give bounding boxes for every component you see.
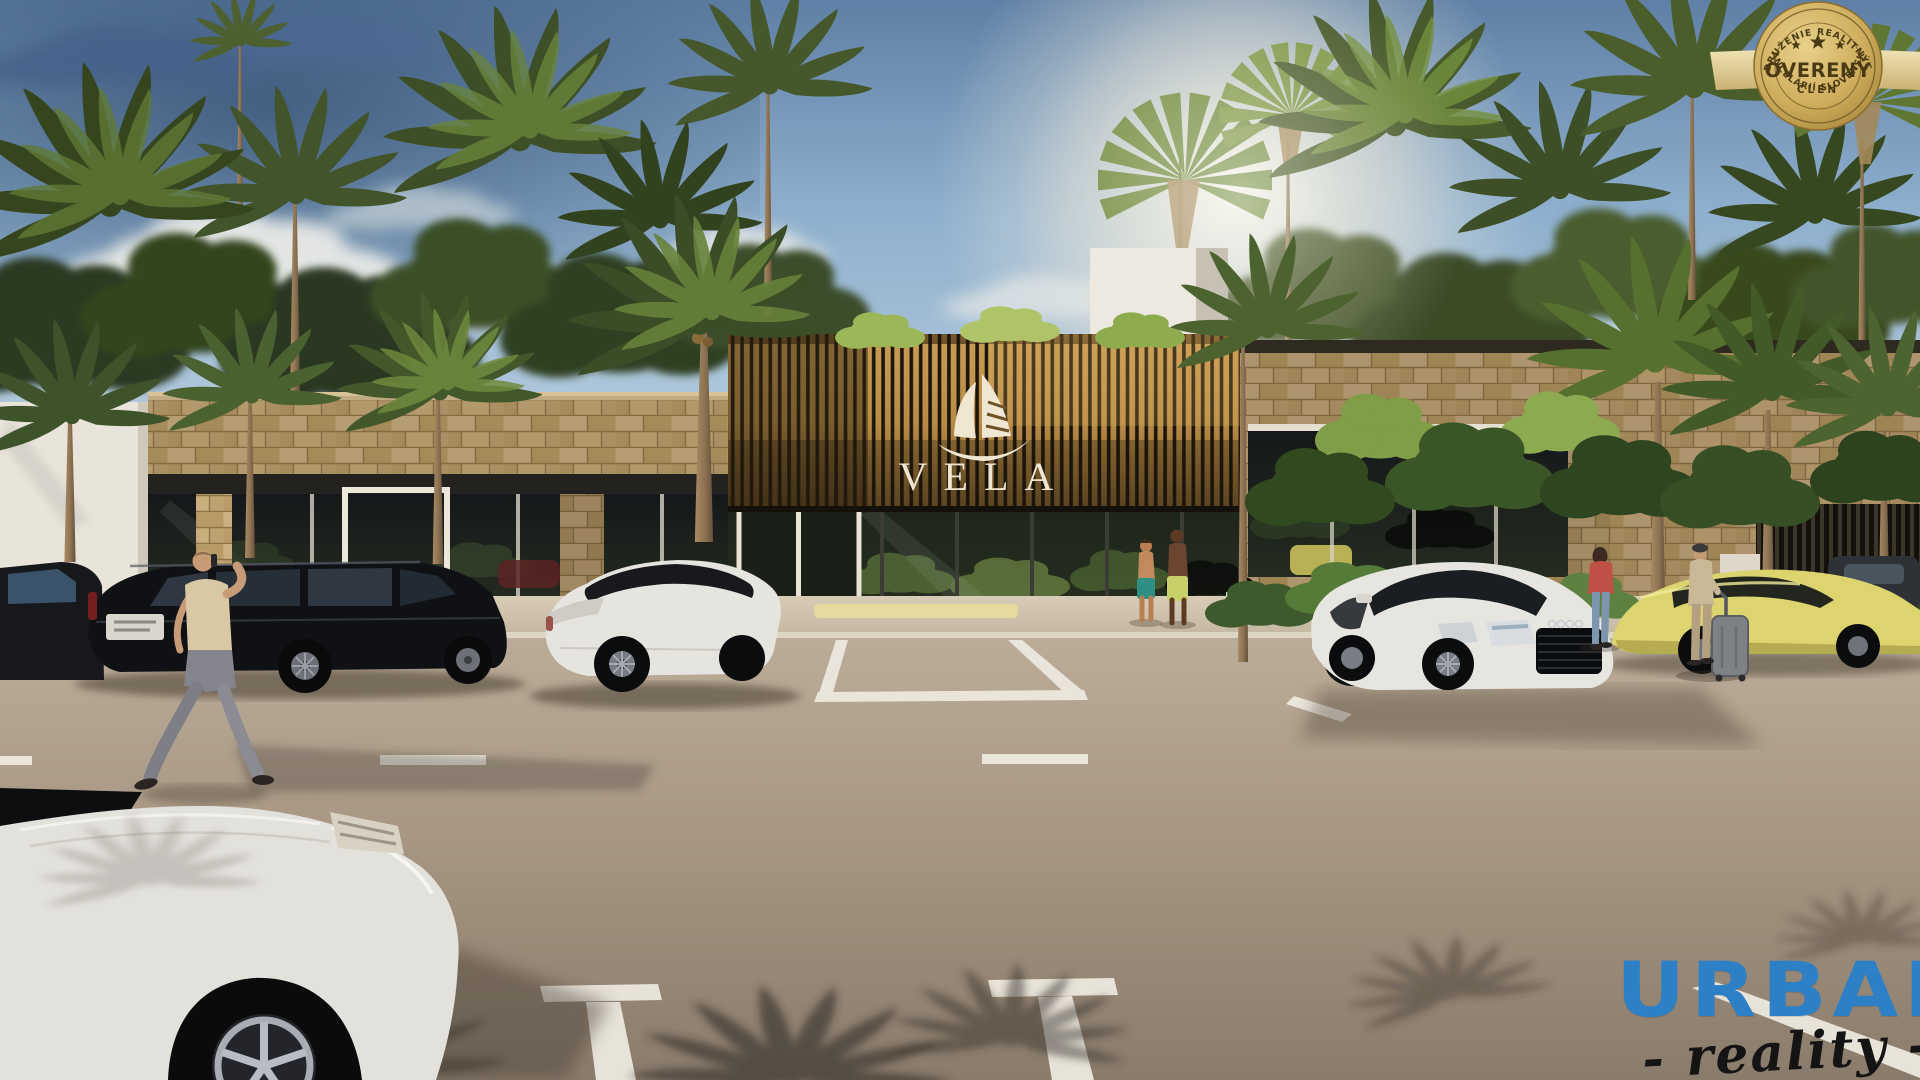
taillight [546,616,553,631]
car-dark-left-edge [0,562,104,680]
wheel [719,635,765,681]
teal-swim-shorts [1137,578,1155,599]
vela-sign: VELA [728,334,1240,512]
architectural-render-scene: VELA [0,0,1920,1080]
suitcase [1712,616,1748,676]
urban-reality-logo: URBAN - reality - [1616,952,1920,1076]
parked-car-glimpse [498,560,560,588]
verified-member-badge: ZDRUŽENIE REALITNÝCH KANCELÁRIÍ SLOVENSK… [1708,0,1920,136]
wheel [1422,638,1474,690]
wheel [444,636,492,684]
taillight [88,592,97,620]
license-plate [106,614,164,640]
badge-subtitle: ČLEN [1797,83,1839,96]
phone-icon [211,554,217,567]
wheel [594,636,650,692]
scene-canvas: VELA [0,0,1920,1080]
green-swim-shorts [1167,576,1188,601]
side-mirror [1356,594,1372,603]
building-name-text: VELA [899,454,1070,499]
flat-cap [1692,544,1708,553]
wheel [278,639,332,693]
yellow-curb [814,604,1018,618]
headlight [1486,620,1536,646]
wheel [1329,635,1375,681]
badge-title: OVERENÝ [1765,58,1872,82]
wheel [1836,624,1880,668]
